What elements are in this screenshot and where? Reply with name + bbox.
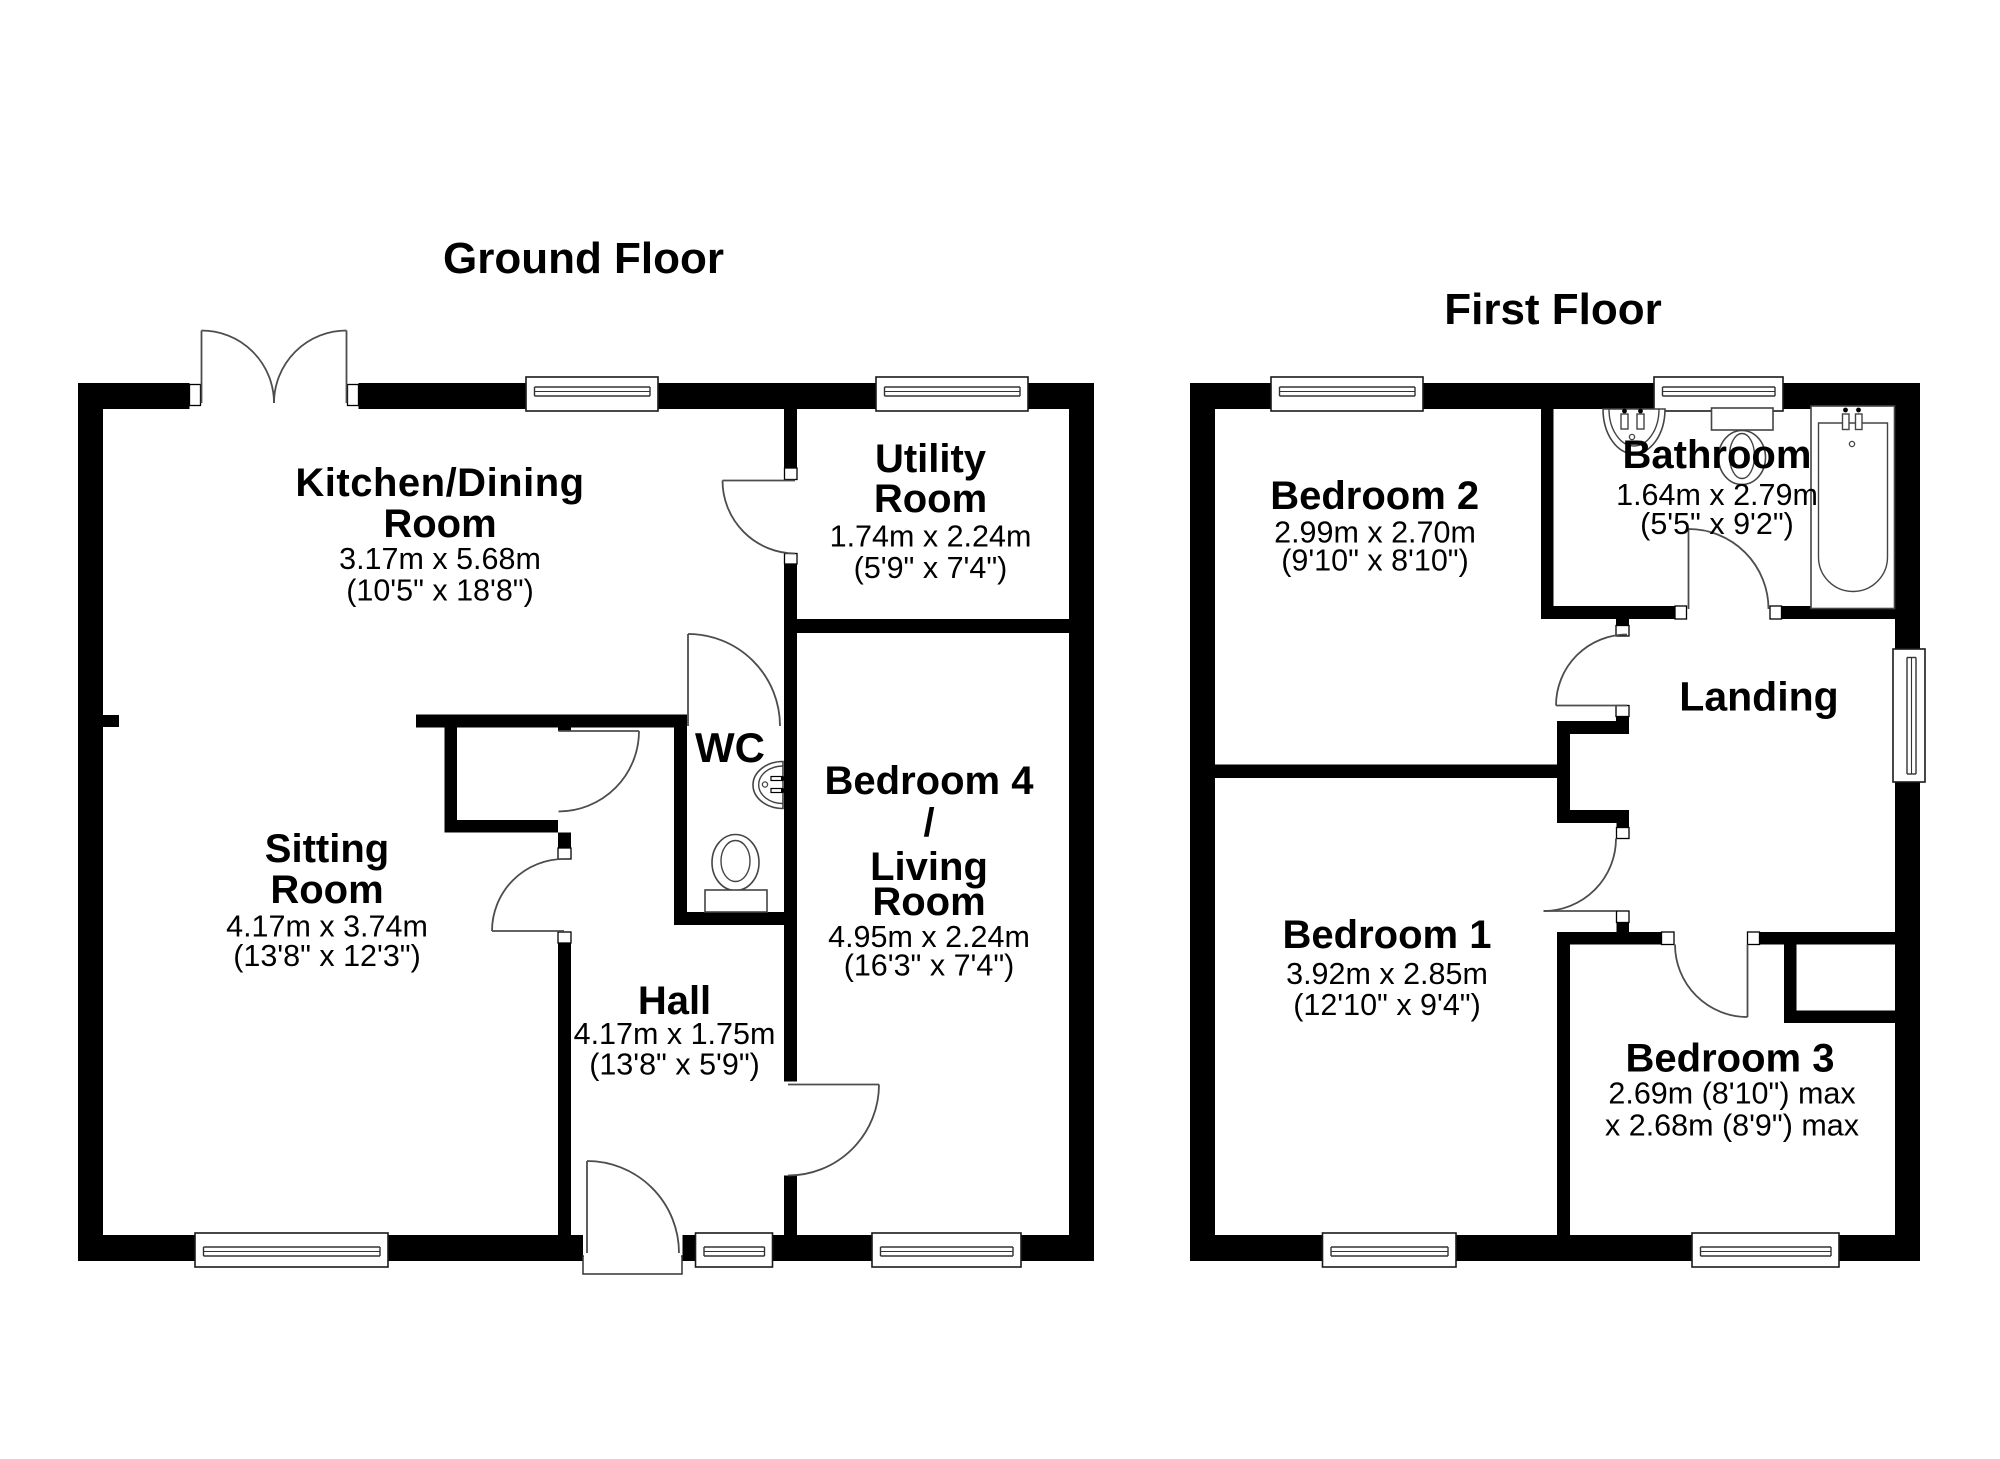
svg-text:x 2.68m (8'9") max: x 2.68m (8'9") max — [1605, 1109, 1859, 1143]
svg-text:/: / — [923, 801, 934, 845]
svg-text:(10'5" x 18'8"): (10'5" x 18'8") — [346, 574, 534, 608]
svg-text:Utility: Utility — [875, 437, 987, 481]
svg-text:(12'10" x 9'4"): (12'10" x 9'4") — [1293, 988, 1481, 1022]
svg-text:(5'9" x 7'4"): (5'9" x 7'4") — [854, 551, 1008, 585]
svg-text:Room: Room — [270, 868, 383, 912]
svg-text:Bedroom 4: Bedroom 4 — [825, 759, 1035, 803]
svg-text:(13'8" x 12'3"): (13'8" x 12'3") — [233, 939, 421, 973]
svg-text:Room: Room — [383, 502, 496, 546]
svg-text:2.69m (8'10") max: 2.69m (8'10") max — [1608, 1077, 1855, 1111]
svg-text:WC: WC — [695, 724, 765, 771]
svg-text:Room: Room — [874, 477, 987, 521]
svg-text:Bedroom 3: Bedroom 3 — [1626, 1037, 1835, 1081]
svg-text:(16'3" x 7'4"): (16'3" x 7'4") — [844, 949, 1015, 983]
svg-text:4.17m x 1.75m: 4.17m x 1.75m — [574, 1017, 776, 1051]
svg-text:Bathroom: Bathroom — [1623, 433, 1812, 477]
svg-text:Room: Room — [872, 880, 985, 924]
svg-text:Bedroom 1: Bedroom 1 — [1283, 913, 1492, 957]
svg-text:Landing: Landing — [1679, 674, 1838, 720]
svg-text:(13'8" x 5'9"): (13'8" x 5'9") — [589, 1048, 760, 1082]
svg-text:Ground Floor: Ground Floor — [443, 234, 724, 283]
svg-text:Kitchen/Dining: Kitchen/Dining — [295, 461, 584, 505]
svg-text:(9'10" x 8'10"): (9'10" x 8'10") — [1281, 544, 1469, 578]
svg-text:1.74m x 2.24m: 1.74m x 2.24m — [830, 520, 1032, 554]
svg-text:Sitting: Sitting — [265, 827, 389, 871]
svg-text:Bedroom 2: Bedroom 2 — [1270, 474, 1479, 518]
svg-text:First Floor: First Floor — [1444, 285, 1662, 334]
svg-text:(5'5" x 9'2"): (5'5" x 9'2") — [1640, 507, 1794, 541]
svg-text:3.92m x 2.85m: 3.92m x 2.85m — [1286, 957, 1488, 991]
svg-text:3.17m x 5.68m: 3.17m x 5.68m — [339, 542, 541, 576]
